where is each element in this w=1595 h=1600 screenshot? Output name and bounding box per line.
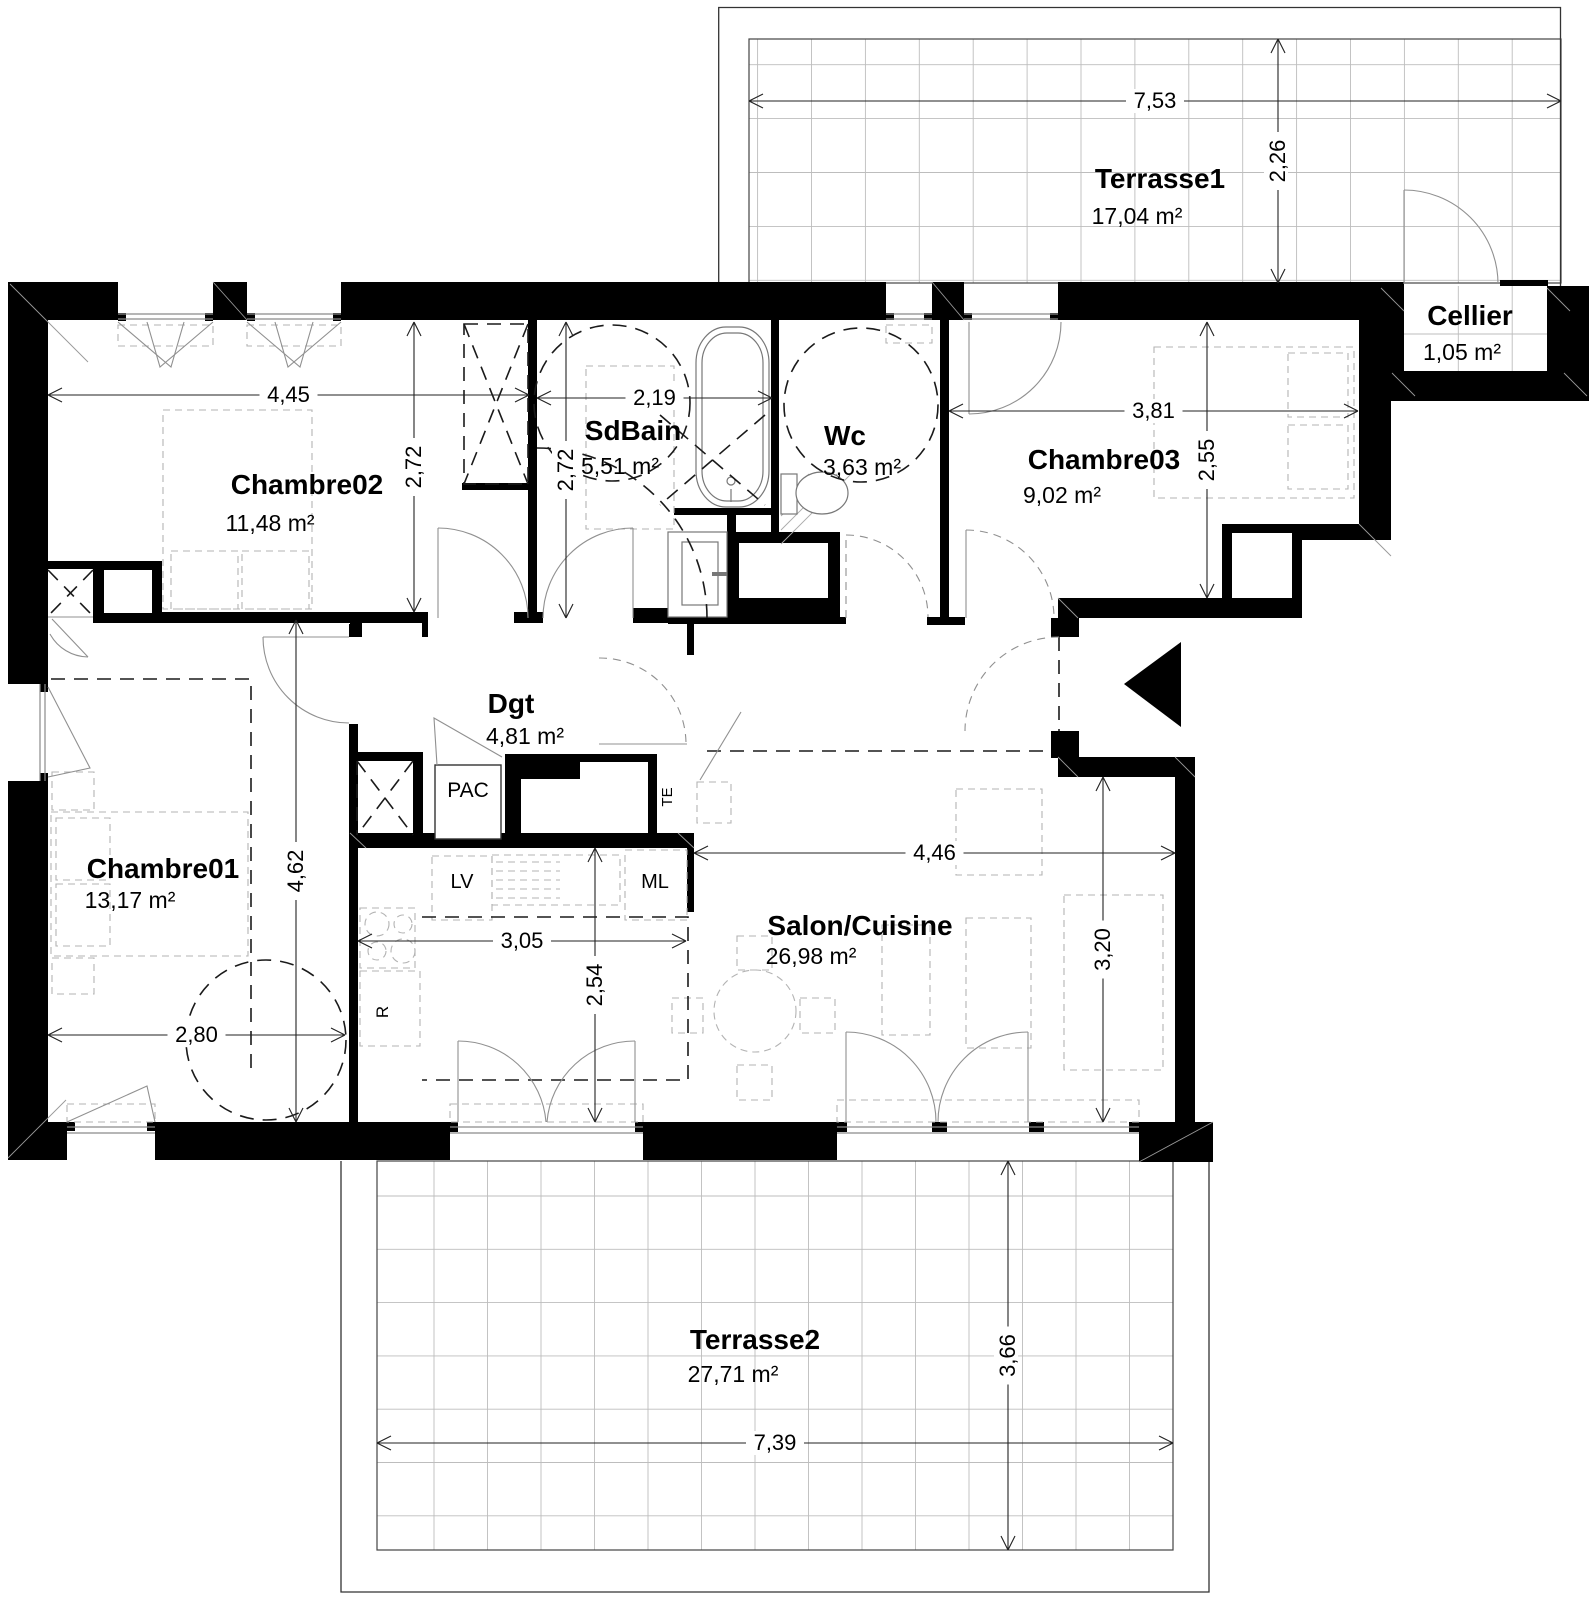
svg-text:Salon/Cuisine: Salon/Cuisine bbox=[767, 910, 952, 941]
svg-text:SdBain: SdBain bbox=[585, 415, 681, 446]
svg-text:Cellier: Cellier bbox=[1427, 300, 1513, 331]
svg-text:7,39: 7,39 bbox=[754, 1430, 797, 1455]
svg-text:Terrasse1: Terrasse1 bbox=[1095, 163, 1225, 194]
svg-text:4,45: 4,45 bbox=[267, 382, 310, 407]
svg-text:2,72: 2,72 bbox=[553, 449, 578, 492]
svg-text:PAC: PAC bbox=[447, 779, 489, 802]
svg-text:3,05: 3,05 bbox=[501, 928, 544, 953]
svg-text:ML: ML bbox=[641, 871, 669, 893]
svg-text:R: R bbox=[373, 1006, 392, 1018]
svg-text:17,04 m²: 17,04 m² bbox=[1092, 203, 1183, 229]
svg-text:LV: LV bbox=[451, 871, 475, 893]
svg-text:4,62: 4,62 bbox=[283, 850, 308, 893]
svg-text:26,98 m²: 26,98 m² bbox=[766, 943, 857, 969]
svg-text:2,72: 2,72 bbox=[401, 446, 426, 489]
svg-text:2,19: 2,19 bbox=[633, 385, 676, 410]
svg-text:4,81 m²: 4,81 m² bbox=[486, 723, 564, 749]
svg-text:Wc: Wc bbox=[824, 420, 866, 451]
svg-text:9,02 m²: 9,02 m² bbox=[1023, 482, 1101, 508]
svg-text:3,66: 3,66 bbox=[995, 1334, 1020, 1377]
svg-text:2,26: 2,26 bbox=[1265, 140, 1290, 183]
svg-text:3,81: 3,81 bbox=[1132, 398, 1175, 423]
svg-text:3,20: 3,20 bbox=[1090, 928, 1115, 971]
svg-text:2,55: 2,55 bbox=[1194, 439, 1219, 482]
svg-text:Dgt: Dgt bbox=[488, 688, 535, 719]
svg-text:Chambre01: Chambre01 bbox=[87, 853, 240, 884]
svg-text:4,46: 4,46 bbox=[913, 840, 956, 865]
svg-text:5,51 m²: 5,51 m² bbox=[581, 453, 659, 479]
svg-text:3,63 m²: 3,63 m² bbox=[823, 454, 901, 480]
svg-text:1,05 m²: 1,05 m² bbox=[1423, 339, 1501, 365]
svg-text:Chambre03: Chambre03 bbox=[1028, 444, 1181, 475]
svg-text:11,48 m²: 11,48 m² bbox=[225, 510, 314, 536]
svg-text:13,17 m²: 13,17 m² bbox=[85, 887, 176, 913]
svg-text:TE: TE bbox=[659, 787, 676, 806]
svg-text:2,54: 2,54 bbox=[582, 964, 607, 1007]
svg-text:2,80: 2,80 bbox=[175, 1022, 218, 1047]
svg-text:Chambre02: Chambre02 bbox=[231, 469, 384, 500]
svg-text:27,71 m²: 27,71 m² bbox=[688, 1361, 779, 1387]
svg-text:Terrasse2: Terrasse2 bbox=[690, 1324, 820, 1355]
svg-text:7,53: 7,53 bbox=[1134, 88, 1177, 113]
